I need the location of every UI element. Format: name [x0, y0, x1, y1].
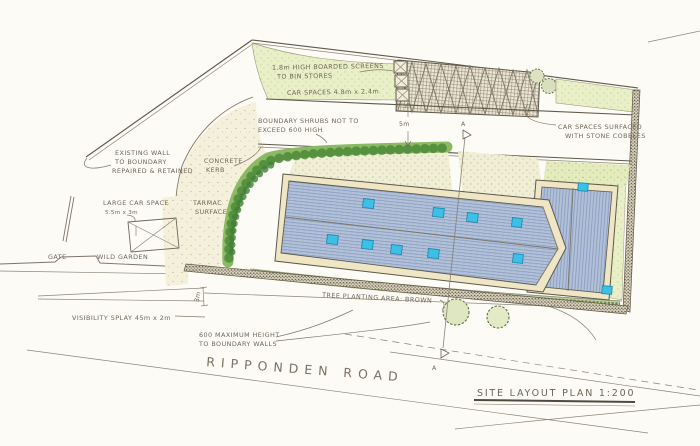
tree-icon	[542, 79, 557, 94]
skylight	[467, 212, 479, 222]
skylight	[391, 244, 403, 254]
label-wild-garden: WILD GARDEN	[97, 253, 148, 261]
section-label-top: A	[461, 121, 466, 128]
label-cobbles-2: WITH STONE COBBLES	[565, 132, 646, 140]
skylight	[602, 286, 613, 295]
skylight	[428, 248, 440, 258]
section-label-bottom: A	[432, 365, 437, 372]
site-plan-sheet: A A 5m 3m 1.8m HIGH BOARDED SCREENS TO B…	[0, 0, 700, 446]
label-existing-wall-3: REPAIRED & RETAINED	[112, 167, 193, 175]
label-shrubs-1: BOUNDARY SHRUBS NOT TO	[258, 117, 359, 125]
label-max-height-1: 600 MAXIMUM HEIGHT	[199, 331, 280, 339]
tree-icon	[530, 69, 544, 83]
label-visibility-splay: VISIBILITY SPLAY 45m x 2m	[72, 314, 171, 322]
dim-5m-label: 5m	[399, 121, 410, 128]
wild-garden-verge	[162, 194, 190, 286]
label-tarmac-2: SURFACE	[195, 208, 227, 216]
label-car-spaces-top: CAR SPACES 4.8m x 2.4m	[287, 87, 379, 97]
label-gate: GATE	[48, 253, 67, 261]
skylight	[512, 217, 523, 227]
skylight	[362, 239, 374, 249]
skylight	[363, 198, 375, 208]
skylight	[578, 183, 589, 192]
bin-store	[394, 61, 409, 101]
plan-title: SITE LAYOUT PLAN 1:200	[477, 388, 635, 399]
site-plan-canvas: A A 5m 3m 1.8m HIGH BOARDED SCREENS TO B…	[0, 0, 700, 446]
label-shrubs-2: EXCEED 600 HIGH	[258, 126, 323, 134]
label-large-space-2: 5.5m x 3m	[105, 210, 138, 216]
label-large-space-1: LARGE CAR SPACE	[103, 199, 169, 207]
label-existing-wall-1: EXISTING WALL	[115, 149, 170, 157]
label-bin-screens-2: TO BIN STORES	[276, 72, 333, 81]
tree-icon	[487, 306, 509, 328]
label-cobbles-1: CAR SPACES SURFACED	[558, 123, 642, 131]
skylight	[513, 253, 524, 263]
skylight	[327, 234, 339, 244]
label-max-height-2: TO BOUNDARY WALLS	[198, 340, 277, 348]
label-kerb-2: KERB	[206, 166, 225, 174]
label-tarmac-1: TARMAC	[192, 199, 222, 207]
label-existing-wall-2: TO BOUNDARY	[114, 158, 167, 166]
skylight	[433, 207, 445, 217]
label-kerb-1: CONCRETE	[204, 157, 243, 165]
